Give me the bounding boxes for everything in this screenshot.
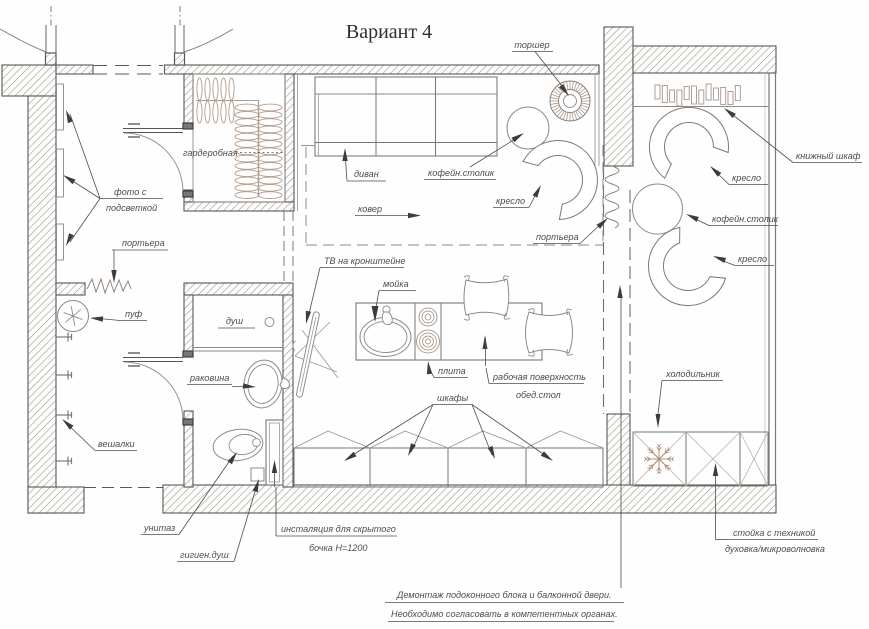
svg-text:стойка с техникой: стойка с техникой (733, 528, 815, 538)
svg-text:раковина: раковина (189, 373, 229, 383)
svg-text:портьера: портьера (122, 238, 165, 248)
svg-text:мойка: мойка (383, 279, 409, 289)
svg-text:книжный шкаф: книжный шкаф (796, 151, 861, 161)
svg-text:духовка/микроволновка: духовка/микроволновка (725, 544, 825, 554)
svg-text:инсталяция для скрытого: инсталяция для скрытого (281, 524, 396, 534)
svg-text:душ: душ (226, 316, 243, 326)
svg-text:Демонтаж подоконного блока и б: Демонтаж подоконного блока и балконной д… (396, 590, 612, 600)
svg-text:рабочая поверхность: рабочая поверхность (492, 372, 586, 382)
svg-text:кофейн.столик: кофейн.столик (428, 168, 495, 178)
svg-text:шкафы: шкафы (437, 393, 468, 403)
svg-text:гигиен.душ: гигиен.душ (180, 550, 229, 560)
svg-text:холодильник: холодильник (665, 369, 721, 379)
svg-text:торшер: торшер (514, 40, 549, 50)
svg-text:плита: плита (438, 366, 466, 376)
svg-text:Вариант 4: Вариант 4 (346, 21, 432, 43)
svg-text:гардеробная: гардеробная (183, 148, 238, 158)
svg-text:пуф: пуф (125, 309, 143, 319)
svg-text:кресло: кресло (738, 254, 767, 264)
svg-text:диван: диван (354, 169, 379, 179)
svg-text:унитаз: унитаз (143, 523, 175, 533)
svg-text:обед.стол: обед.стол (516, 390, 561, 400)
svg-text:кресло: кресло (732, 173, 761, 183)
svg-text:бочка Н=1200: бочка Н=1200 (309, 543, 367, 553)
svg-text:ковер: ковер (358, 204, 382, 214)
svg-text:вешалки: вешалки (98, 439, 135, 449)
svg-text:Необходимо согласовать в компе: Необходимо согласовать в компетентных ор… (391, 609, 618, 619)
svg-text:кресло: кресло (496, 196, 525, 206)
svg-text:ТВ на кронштейне: ТВ на кронштейне (324, 256, 405, 266)
svg-text:кофейн.столик: кофейн.столик (712, 214, 779, 224)
svg-text:подсветкой: подсветкой (106, 203, 157, 213)
svg-text:портьера: портьера (536, 232, 579, 242)
svg-text:фото с: фото с (114, 187, 147, 197)
